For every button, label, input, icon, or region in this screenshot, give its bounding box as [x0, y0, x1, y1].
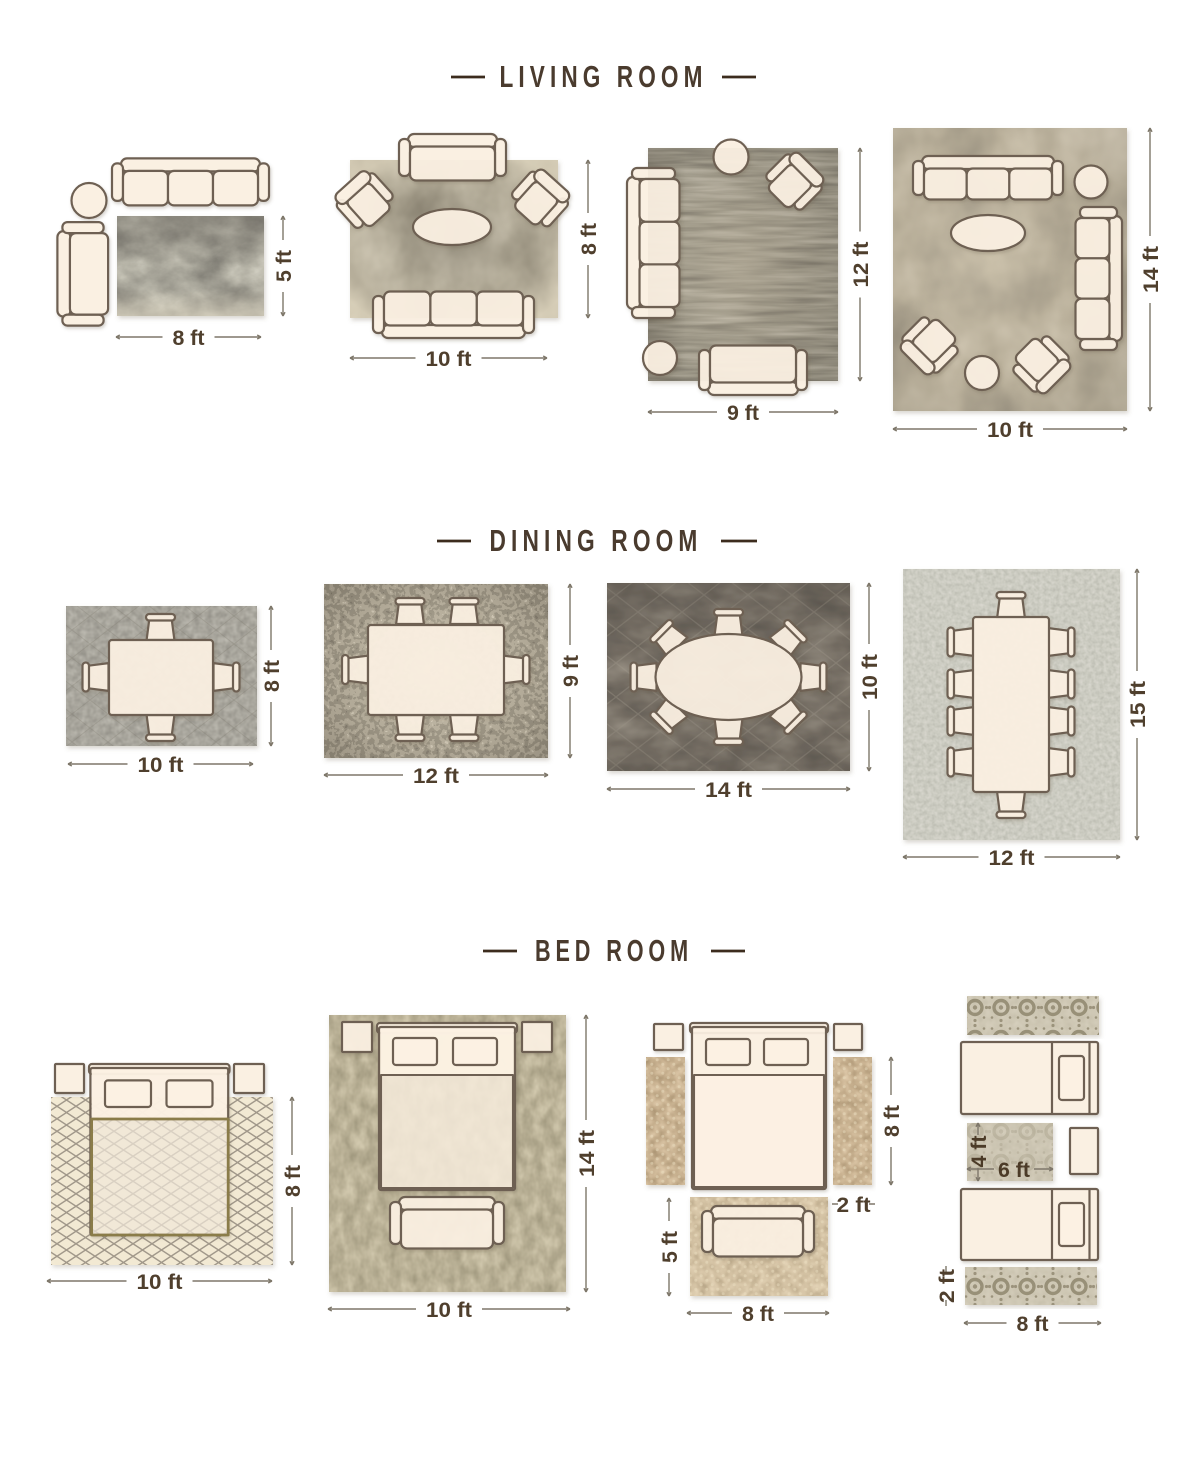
svg-text:10 ft: 10 ft	[987, 419, 1033, 442]
svg-text:6 ft: 6 ft	[998, 1159, 1030, 1182]
svg-text:10 ft: 10 ft	[138, 754, 184, 777]
svg-text:8 ft: 8 ft	[1017, 1313, 1049, 1336]
svg-text:DINING ROOM: DINING ROOM	[490, 523, 703, 558]
svg-text:5 ft: 5 ft	[659, 1231, 682, 1263]
svg-text:10 ft: 10 ft	[859, 654, 882, 700]
svg-text:10 ft: 10 ft	[426, 1299, 472, 1322]
svg-text:8 ft: 8 ft	[742, 1303, 774, 1326]
svg-text:8 ft: 8 ft	[881, 1105, 904, 1137]
svg-text:10 ft: 10 ft	[426, 348, 472, 371]
svg-text:BED ROOM: BED ROOM	[535, 933, 693, 968]
svg-text:14 ft: 14 ft	[705, 779, 752, 802]
svg-text:8 ft: 8 ft	[282, 1165, 305, 1197]
svg-text:4 ft: 4 ft	[968, 1135, 991, 1167]
svg-text:8 ft: 8 ft	[578, 223, 601, 255]
svg-text:14 ft: 14 ft	[576, 1130, 599, 1177]
svg-text:12 ft: 12 ft	[850, 242, 873, 288]
svg-text:12 ft: 12 ft	[989, 847, 1035, 870]
svg-text:8 ft: 8 ft	[261, 660, 284, 692]
svg-text:14 ft: 14 ft	[1140, 246, 1163, 293]
svg-text:9 ft: 9 ft	[560, 655, 583, 687]
svg-text:2 ft: 2 ft	[936, 1269, 959, 1303]
svg-text:12 ft: 12 ft	[413, 765, 459, 788]
svg-text:10 ft: 10 ft	[137, 1271, 183, 1294]
svg-text:2 ft: 2 ft	[837, 1194, 871, 1217]
svg-text:5 ft: 5 ft	[273, 250, 296, 282]
svg-text:15 ft: 15 ft	[1127, 681, 1150, 728]
svg-text:9 ft: 9 ft	[727, 402, 759, 425]
svg-text:LIVING ROOM: LIVING ROOM	[500, 59, 708, 94]
svg-text:8 ft: 8 ft	[173, 327, 205, 350]
